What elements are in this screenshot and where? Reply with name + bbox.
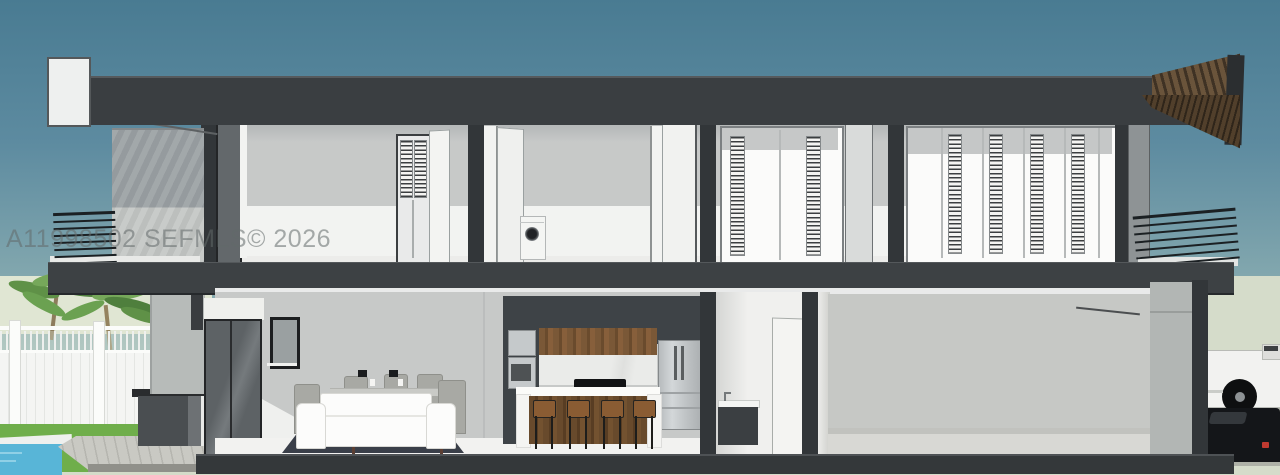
upper-partition-wall [468, 108, 484, 266]
car-taillight [1262, 442, 1269, 448]
closet-louver-slats [414, 140, 427, 198]
fence-post [93, 321, 105, 431]
table-decor [389, 370, 398, 377]
louver-strip [1030, 134, 1044, 254]
wood-cabinet-band [539, 328, 657, 355]
shutter-seam [1023, 128, 1025, 258]
slider-mullion [230, 321, 232, 453]
upper-partition-wall [888, 112, 904, 262]
fridge-handle [681, 346, 684, 380]
stool-leg [551, 416, 553, 449]
sofa-arm [296, 403, 326, 449]
louver-strip [989, 134, 1003, 254]
truck-hub [1235, 392, 1245, 402]
faucet-spout [724, 392, 731, 394]
shutter-seam [941, 128, 943, 258]
fridge-handle [674, 346, 677, 380]
truck-window [1264, 346, 1278, 351]
stool-leg [535, 416, 537, 449]
mls-watermark: A11998502 SEFMLS© 2026 [6, 225, 331, 254]
powder-door [772, 317, 804, 460]
deck-edge [88, 464, 208, 472]
stool-leg [569, 416, 571, 449]
table-cup [370, 379, 375, 386]
upper-partition-wall [700, 108, 716, 266]
roof-slab [60, 76, 1234, 125]
wall-corner-line [483, 292, 485, 440]
exterior-utility-box [191, 290, 203, 330]
foundation-slab [196, 454, 1234, 474]
patio-door-header [204, 298, 264, 320]
open-door-leaf [429, 129, 450, 264]
open-door-leaf [662, 121, 697, 267]
washer-door [525, 227, 539, 241]
outdoor-kitchen-side [188, 396, 202, 446]
garage-floor [828, 434, 1152, 456]
fridge-drawer-line [660, 392, 700, 394]
closet-door-seam [412, 200, 414, 258]
sofa-seat-crease [323, 415, 427, 417]
stool-leg [585, 416, 587, 449]
table-cup [398, 379, 403, 386]
window-sill [267, 363, 297, 366]
shutter-seam [779, 130, 781, 260]
table-decor [358, 370, 367, 377]
stool-leg [651, 416, 653, 449]
lower-partition-wall [700, 292, 716, 456]
louver-strip [1071, 134, 1085, 254]
roof-left-fascia [47, 57, 91, 127]
louver-strip [806, 136, 821, 256]
closet-louver-slats [400, 140, 413, 198]
car-windshield [1209, 412, 1248, 424]
washer-panel-line [520, 222, 544, 223]
stool-leg [619, 416, 621, 449]
house-cross-section-rendering: A11998502 SEFMLS© 2026 [0, 0, 1280, 475]
shutter-seam [982, 128, 984, 258]
powder-vanity [718, 407, 758, 445]
oven-glass [511, 364, 531, 381]
outdoor-kitchen-body [138, 396, 190, 446]
door-jamb [484, 126, 498, 264]
sofa-body [320, 393, 432, 447]
ground-cut-wall-right [1192, 280, 1208, 472]
stool-leg [603, 416, 605, 449]
louver-strip [948, 134, 962, 254]
pool-step [0, 460, 16, 462]
powder-right-wall [802, 292, 818, 456]
shutter-seam [1064, 128, 1066, 258]
return-wall-crease [1150, 311, 1194, 313]
open-shutter-leaf [845, 119, 873, 270]
living-room-window [270, 317, 300, 369]
pool-step [0, 452, 22, 454]
shutter-seam [1098, 128, 1100, 258]
fridge-drawer-line [660, 407, 700, 409]
fence-post [9, 320, 21, 432]
microwave [508, 330, 536, 356]
garage-back-wall [828, 294, 1152, 434]
stool-leg [635, 416, 637, 449]
louver-strip [730, 136, 745, 256]
sofa-arm [426, 403, 456, 449]
